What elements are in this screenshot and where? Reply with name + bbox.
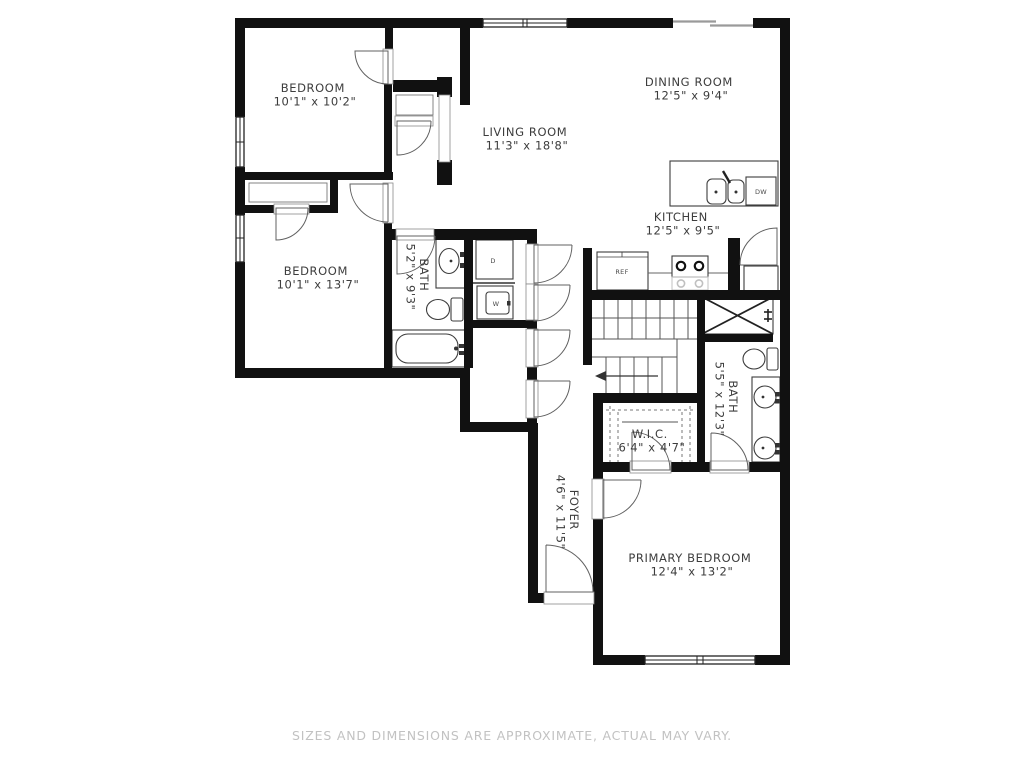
toilet bbox=[427, 298, 464, 321]
room-label-dining: DINING ROOM 12'5" x 9'4" bbox=[645, 75, 737, 103]
bedroom-left-window bbox=[236, 215, 244, 262]
bedroom-closet-shelf bbox=[249, 183, 327, 202]
living-vestibule-cased-opening bbox=[439, 95, 450, 162]
washer-label: W bbox=[493, 300, 500, 308]
bedroom-top-window bbox=[236, 117, 244, 167]
dishwasher-label: DW bbox=[755, 188, 767, 196]
dishwasher: DW bbox=[746, 177, 776, 205]
entry-door bbox=[546, 545, 593, 592]
dryer-label: D bbox=[490, 257, 495, 265]
primary-bedroom-window bbox=[645, 656, 755, 664]
kitchen-pantry bbox=[744, 266, 778, 293]
foyer-closet-door bbox=[534, 381, 570, 417]
room-label-foyer: FOYER 4'6" x 11'5" bbox=[554, 475, 582, 550]
washer-unit: W bbox=[477, 286, 513, 319]
hall-closet-door bbox=[534, 330, 570, 366]
bathtub bbox=[392, 330, 465, 367]
room-label-bedroom-left: BEDROOM 10'1" x 13'7" bbox=[277, 264, 360, 292]
room-label-wic: W.I.C. 6'4" x 4'7" bbox=[619, 427, 686, 455]
staircase bbox=[592, 297, 697, 393]
hall-linen-closet-shelf bbox=[396, 95, 433, 115]
living-room-window bbox=[483, 19, 567, 27]
room-label-bedroom-top: BEDROOM 10'1" x 10'2" bbox=[274, 81, 357, 109]
bedroom-left-door bbox=[350, 184, 388, 222]
room-label-primary-bath: BATH 5'5" x 12'3" bbox=[713, 362, 741, 437]
laundry-door-lower bbox=[534, 285, 570, 321]
refrigerator: REF bbox=[597, 252, 648, 290]
room-label-primary: PRIMARY BEDROOM 12'4" x 13'2" bbox=[628, 551, 755, 579]
dining-sliding-door bbox=[673, 22, 753, 26]
double-vanity bbox=[752, 377, 780, 462]
laundry-door-upper bbox=[534, 245, 572, 283]
room-label-kitchen: KITCHEN 12'5" x 9'5" bbox=[646, 210, 721, 238]
shower bbox=[702, 297, 773, 334]
dryer-unit: D bbox=[476, 240, 513, 279]
kitchen-island: DW bbox=[670, 161, 778, 206]
primary-bedroom-door bbox=[603, 480, 641, 518]
laundry-closet: D W bbox=[473, 240, 515, 319]
refrigerator-label: REF bbox=[615, 268, 628, 276]
toilet bbox=[743, 348, 778, 370]
bathroom-sink bbox=[436, 239, 465, 288]
disclaimer-text: SIZES AND DIMENSIONS ARE APPROXIMATE, AC… bbox=[292, 728, 732, 743]
stairs-direction-arrow bbox=[595, 371, 658, 381]
floor-plan-page: DW REF D W bbox=[0, 0, 1023, 767]
room-label-living: LIVING ROOM 11'3" x 18'8" bbox=[482, 125, 571, 153]
floor-plan-canvas: DW REF D W bbox=[0, 0, 1023, 767]
pantry-door bbox=[740, 228, 777, 265]
stove bbox=[672, 256, 708, 290]
room-label-hall-bath: BATH 5'2" x 9'3" bbox=[404, 244, 432, 311]
